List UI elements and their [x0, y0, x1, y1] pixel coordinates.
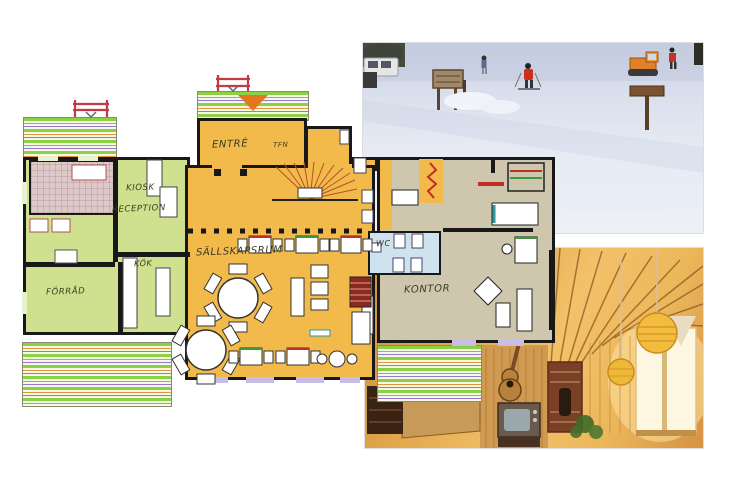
corridor-patch	[380, 160, 392, 230]
direction-sign	[630, 86, 664, 130]
door-opening-entre	[212, 164, 242, 172]
door-opening-stairs	[308, 164, 352, 172]
brochure-page: ENTRÉ TFN KIOSK RECEPTION KÖK FÖRRÅD SÄL…	[0, 0, 740, 477]
bench-icon-top-left	[73, 100, 109, 117]
label-kontor: KONTOR	[404, 283, 451, 296]
pendant-lamp-small	[608, 359, 634, 385]
label-kiosk: KIOSK	[126, 183, 155, 194]
bench-icon-entry	[216, 75, 250, 91]
television	[498, 403, 540, 447]
hall-extension-patch	[419, 159, 443, 203]
label-forrad: FÖRRÅD	[46, 286, 86, 297]
label-kok: KÖK	[134, 259, 153, 269]
snow-mound-small	[480, 100, 520, 114]
label-wc: WC	[376, 239, 391, 249]
tree-trunk-right	[694, 43, 703, 65]
room-tfn-nook	[305, 126, 352, 168]
deck-top-left	[23, 117, 117, 159]
label-entre: ENTRÉ	[212, 138, 249, 150]
parked-vehicle	[363, 58, 398, 88]
entry-arrow-icon	[238, 95, 268, 111]
room-wc	[368, 231, 441, 275]
room-storage-pink	[29, 160, 115, 215]
label-tfn: TFN	[273, 141, 289, 150]
room-sallskapsrum	[185, 165, 375, 380]
deck-bottom-right	[377, 345, 482, 402]
deck-bottom-left	[22, 342, 172, 407]
label-reception: RECEPTION	[112, 203, 166, 215]
pendant-lamp-big	[637, 313, 677, 353]
